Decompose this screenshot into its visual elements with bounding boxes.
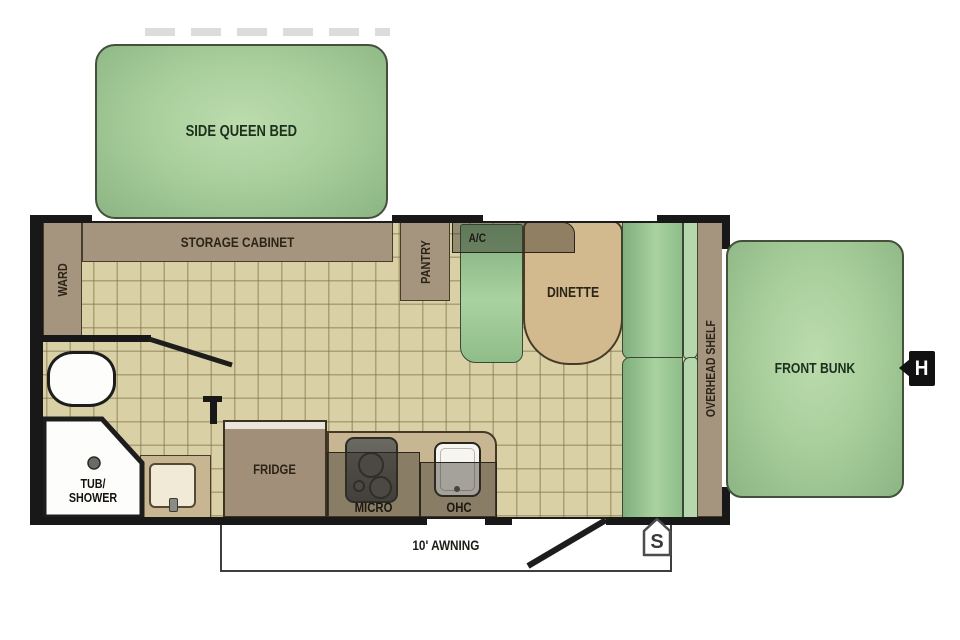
wardrobe: WARD [43,222,82,337]
overhead-shelf: OVERHEAD SHELF [697,220,724,517]
fridge-top-trim [225,422,325,429]
awning-outline: 10' AWNING [220,519,672,572]
side-queen-bed-label: SIDE QUEEN BED [186,123,297,141]
s-marker: S [641,517,673,558]
overhead-cabinet-overlay: OHC [420,462,497,518]
microwave-overlay: MICRO [327,452,420,518]
storage-cabinet: STORAGE CABINET [82,222,393,262]
awning-label: 10' AWNING [412,537,479,553]
wall-bottom [485,517,512,525]
wall-top [657,215,730,223]
wardrobe-label: WARD [55,263,70,296]
overhead-shelf-label: OVERHEAD SHELF [704,320,718,417]
s-marker-label: S [650,531,663,553]
slideout-dash-outline [145,28,390,36]
wall-bottom [30,517,427,525]
wall-bathroom [30,335,151,342]
ac-unit-overlay: A/C [452,222,575,253]
wall-left [30,215,43,525]
ac-label: A/C [469,231,486,245]
dinette-bench-right-lower [622,357,683,518]
bath-faucet-icon [169,498,178,512]
bench-backrest-upper [683,222,698,359]
fridge: FRIDGE [223,420,327,518]
bench-backrest-lower [683,357,698,518]
window-dinette [483,215,657,223]
dinette-bench-right-upper [622,222,683,359]
front-bunk-label: FRONT BUNK [775,361,856,377]
entry-doorway [512,517,606,525]
floorplan-canvas: WARD STORAGE CABINET PANTRY OVERHEAD SHE… [0,0,960,640]
pantry: PANTRY [400,222,450,301]
wall-top [30,215,92,223]
toilet [47,351,116,407]
side-queen-bed: SIDE QUEEN BED [95,44,388,219]
overhead-cabinet-label: OHC [446,500,471,515]
wall-stub [210,401,217,424]
wall-right [722,487,730,525]
front-bunk: FRONT BUNK [726,240,904,498]
tub-shower-label: TUB/ SHOWER [50,478,136,505]
pantry-label: PANTRY [418,240,433,284]
microwave-label: MICRO [355,500,393,515]
wall-right [722,215,730,249]
wall-top [392,215,483,223]
storage-cabinet-label: STORAGE CABINET [181,234,294,250]
dinette-label: DINETTE [547,285,599,301]
fridge-label: FRIDGE [254,462,297,477]
window-kitchen [427,517,485,525]
h-marker: H [909,351,935,386]
h-marker-label: H [915,357,929,381]
